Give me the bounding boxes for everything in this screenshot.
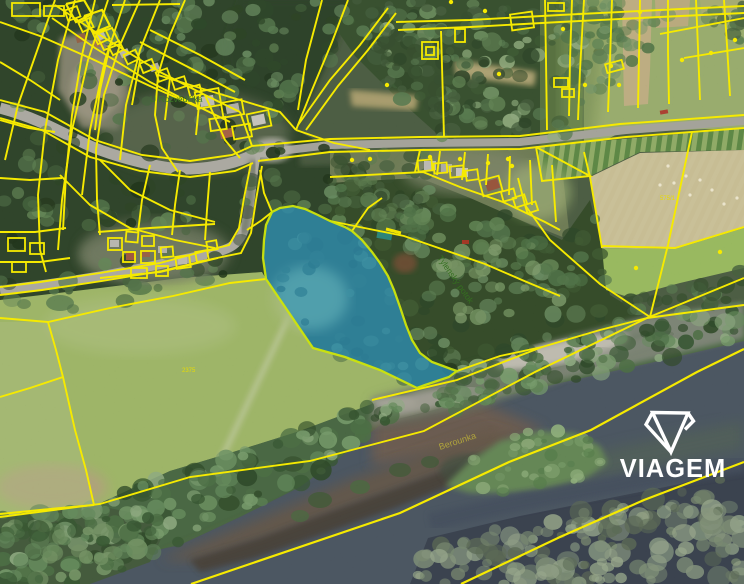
svg-text:2375: 2375 (182, 368, 196, 374)
svg-text:U Rozvědčika: U Rozvědčika (150, 94, 203, 104)
svg-text:575/1: 575/1 (660, 196, 676, 202)
svg-text:VIAGEM: VIAGEM (620, 455, 727, 483)
